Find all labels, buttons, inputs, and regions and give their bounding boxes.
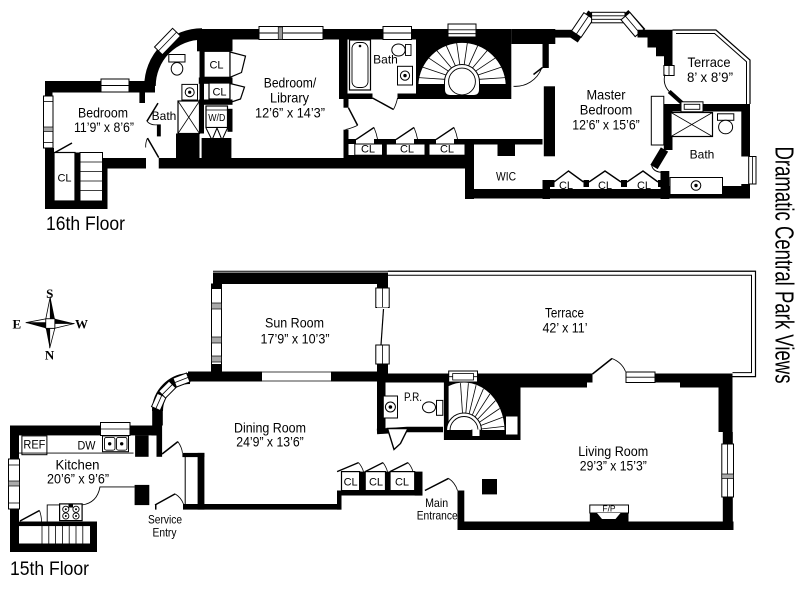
svg-text:Terrace: Terrace bbox=[688, 54, 731, 70]
svg-text:CL: CL bbox=[400, 144, 414, 156]
svg-text:P.R.: P.R. bbox=[404, 390, 422, 404]
svg-text:16th Floor: 16th Floor bbox=[46, 213, 125, 235]
svg-text:24’9” x 13’6”: 24’9” x 13’6” bbox=[236, 434, 304, 450]
svg-text:Entrance: Entrance bbox=[417, 509, 458, 523]
svg-text:CL: CL bbox=[395, 477, 409, 489]
svg-text:20’6” x 9’6”: 20’6” x 9’6” bbox=[47, 471, 109, 487]
svg-text:CL: CL bbox=[559, 180, 573, 192]
svg-text:CL: CL bbox=[361, 144, 375, 156]
svg-text:CL: CL bbox=[369, 477, 383, 489]
svg-text:DW: DW bbox=[78, 439, 97, 453]
svg-text:Bath: Bath bbox=[690, 148, 715, 162]
svg-text:E: E bbox=[12, 317, 21, 332]
svg-text:17’9” x 10’3”: 17’9” x 10’3” bbox=[261, 331, 330, 347]
svg-text:W: W bbox=[75, 317, 88, 332]
svg-text:S: S bbox=[46, 286, 53, 301]
svg-text:CL: CL bbox=[344, 477, 358, 489]
svg-text:Bedroom/: Bedroom/ bbox=[264, 75, 317, 91]
svg-text:Library: Library bbox=[270, 90, 309, 106]
svg-text:29’3” x 15’3”: 29’3” x 15’3” bbox=[580, 458, 647, 474]
svg-text:W/D: W/D bbox=[208, 113, 225, 124]
svg-text:N: N bbox=[45, 348, 55, 363]
svg-text:Master: Master bbox=[587, 87, 626, 103]
svg-text:Terrace: Terrace bbox=[545, 305, 584, 321]
svg-text:12’6” x 15’6”: 12’6” x 15’6” bbox=[572, 117, 640, 133]
svg-text:CL: CL bbox=[209, 60, 223, 72]
svg-text:CL: CL bbox=[637, 180, 651, 192]
svg-text:Entry: Entry bbox=[153, 526, 177, 540]
svg-text:Service: Service bbox=[148, 513, 182, 527]
svg-text:CL: CL bbox=[212, 87, 226, 99]
svg-text:REF: REF bbox=[23, 438, 45, 452]
svg-text:CL: CL bbox=[440, 144, 454, 156]
svg-text:15th Floor: 15th Floor bbox=[10, 558, 89, 580]
svg-text:Sun Room: Sun Room bbox=[265, 315, 324, 331]
svg-text:F/P: F/P bbox=[602, 504, 616, 514]
svg-text:Dramatic Central Park Views: Dramatic Central Park Views bbox=[770, 147, 798, 384]
svg-text:CL: CL bbox=[57, 173, 71, 185]
svg-text:42’ x 11’: 42’ x 11’ bbox=[543, 320, 588, 336]
svg-text:12’6” x 14’3”: 12’6” x 14’3” bbox=[255, 105, 325, 121]
svg-text:11’9” x 8’6”: 11’9” x 8’6” bbox=[74, 119, 134, 135]
svg-text:WIC: WIC bbox=[496, 170, 516, 184]
svg-text:8’ x 8’9”: 8’ x 8’9” bbox=[687, 69, 733, 85]
svg-text:CL: CL bbox=[598, 180, 612, 192]
svg-text:Bath: Bath bbox=[152, 109, 177, 123]
svg-text:Bedroom: Bedroom bbox=[580, 102, 633, 118]
